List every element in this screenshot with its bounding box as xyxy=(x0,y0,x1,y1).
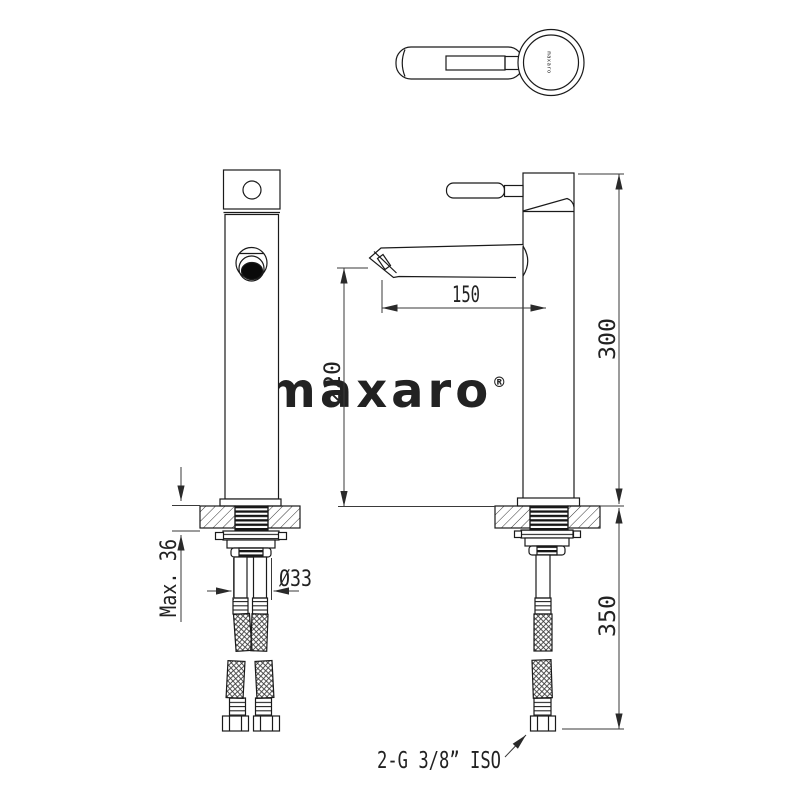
hose-connection-callout: 2-G 3/8” ISO xyxy=(377,735,526,774)
mounting-shank-side xyxy=(530,506,568,530)
countertop-hatch-right xyxy=(268,506,300,528)
hose-ferrule-side xyxy=(534,698,551,716)
lever-connector-side xyxy=(505,186,524,197)
registered-mark: ® xyxy=(492,375,510,391)
hose-crimp-left xyxy=(233,598,248,614)
brand-mark-top: maxaro xyxy=(546,51,552,73)
base-plate-side xyxy=(518,498,580,506)
top-view: maxaro xyxy=(396,30,584,96)
braided-hose-left-upper xyxy=(233,613,252,651)
mounting-washer-side xyxy=(521,530,573,538)
mounting-locknut-front xyxy=(227,540,275,548)
dimension-label-max36: Max. 36 xyxy=(157,539,182,617)
dimension-hose-length: 350 xyxy=(562,508,624,729)
handle-lever-side xyxy=(447,183,505,198)
countertop-hatch-side-left xyxy=(495,506,530,528)
washer-tab-left xyxy=(216,533,224,540)
faucet-body-front xyxy=(225,215,279,500)
dimension-label-150: 150 xyxy=(452,283,480,308)
braided-hose-left-lower xyxy=(226,661,245,699)
braided-hose-side-lower xyxy=(532,660,552,699)
hose-ferrule-left xyxy=(230,698,246,716)
base-plate-front xyxy=(220,499,281,506)
washer-tab-right xyxy=(279,533,287,540)
countertop-hatch-side-right xyxy=(568,506,600,528)
hose-ferrule-right xyxy=(256,698,272,716)
dimension-faucet-height: 300 xyxy=(578,174,624,506)
dimension-label-diameter: Ø33 xyxy=(279,567,312,592)
front-view xyxy=(200,170,300,731)
braided-hose-side-upper xyxy=(534,614,552,651)
hose-nut-right xyxy=(254,716,280,731)
brand-watermark: maxaro® xyxy=(266,363,510,419)
technical-drawing-page: maxaro® maxaro xyxy=(0,0,800,800)
dimension-label-300: 300 xyxy=(596,318,621,360)
braided-hose-right-lower xyxy=(255,661,274,699)
side-view xyxy=(370,173,601,731)
mounting-washer-front xyxy=(223,531,279,540)
handle-cap-front xyxy=(224,170,281,209)
dimension-spout-reach: 150 xyxy=(382,280,546,313)
washer-tab-side-right xyxy=(574,531,581,538)
shank-stub-threads xyxy=(239,548,263,557)
shank-stub-threads-side xyxy=(537,546,557,555)
supply-tube-right xyxy=(254,557,267,598)
hose-crimp-side xyxy=(535,598,551,614)
mounting-shank-front xyxy=(235,506,268,530)
aerator-opening xyxy=(242,263,263,280)
washer-tab-side-left xyxy=(515,531,522,538)
dimension-label-220: 220 xyxy=(321,361,346,403)
hose-crimp-right xyxy=(253,598,268,614)
mounting-locknut-side xyxy=(525,538,569,546)
braided-hose-right-upper xyxy=(251,614,268,652)
hose-nut-side xyxy=(531,716,556,731)
faucet-technical-drawing: maxaro® maxaro xyxy=(0,0,800,800)
supply-tube-left xyxy=(234,557,247,598)
dimension-label-350: 350 xyxy=(596,595,621,637)
hose-nut-left xyxy=(223,716,249,731)
watermark-text: maxaro xyxy=(266,363,492,419)
handle-lever-top xyxy=(396,47,523,79)
faucet-body-side xyxy=(523,173,574,499)
dimension-max-thickness: Max. 36 xyxy=(157,467,200,622)
countertop-hatch-left xyxy=(200,506,235,528)
hose-connection-label: 2-G 3/8” ISO xyxy=(377,748,501,774)
leader-line xyxy=(505,735,526,757)
spout-side xyxy=(370,245,528,278)
supply-tube-side xyxy=(536,555,550,598)
